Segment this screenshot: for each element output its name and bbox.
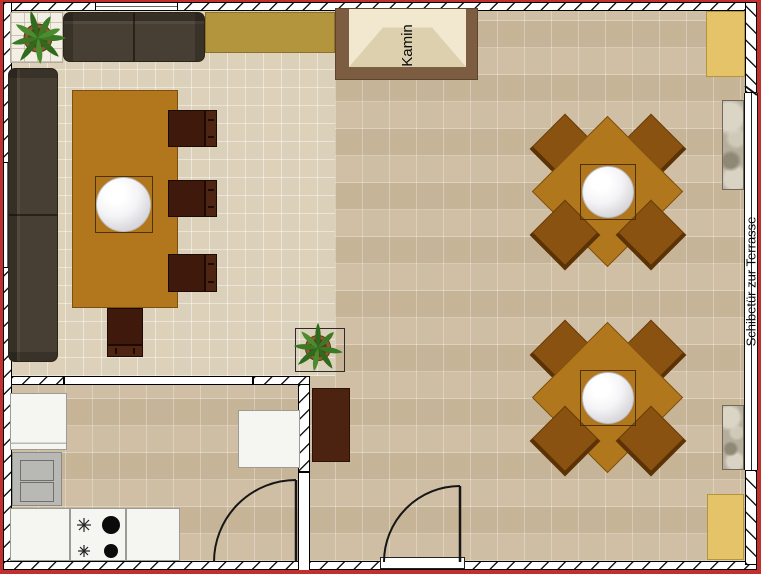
center-plant-box (295, 328, 345, 372)
kitchen-sink[interactable] (12, 452, 62, 506)
sliding-terrace-door[interactable]: Schibetür zur Terrasse (744, 93, 758, 470)
sliding-door-label: Schibetür zur Terrasse (744, 217, 759, 347)
floor-plan: Kamin Schibetür zur Terrasse (0, 0, 761, 574)
cabinet-top-right[interactable] (706, 11, 745, 77)
cabinet-dark-brown[interactable] (312, 388, 350, 462)
fireplace[interactable]: Kamin (335, 8, 478, 80)
interior-wall-kitchen-left (11, 376, 64, 385)
square-table-upper-sphere[interactable] (582, 166, 634, 218)
door-track-pad-bottom (722, 405, 744, 470)
dining-table-sphere[interactable] (96, 177, 151, 232)
kitchen-appliance-square[interactable] (238, 410, 300, 468)
square-table-lower-sphere[interactable] (582, 372, 634, 424)
fireplace-label: Kamin (336, 9, 479, 81)
kitchen-counter-left[interactable] (10, 508, 70, 561)
kitchen-fridge[interactable] (10, 393, 67, 450)
dining-chair-3[interactable] (168, 254, 217, 292)
kitchen-door-opening[interactable] (298, 472, 310, 570)
dining-chair-1[interactable] (168, 110, 217, 147)
cabinet-bottom-right[interactable] (707, 494, 744, 560)
dining-chair-4[interactable] (107, 308, 143, 357)
dining-chair-2[interactable] (168, 180, 217, 217)
door-track-pad-top (722, 100, 744, 190)
wall-right-upper (745, 2, 757, 93)
plan-border-bottom (0, 570, 761, 574)
sofa-top[interactable] (63, 12, 205, 62)
plant-mat (10, 12, 63, 63)
kitchen-counter-right[interactable] (126, 508, 180, 561)
kitchen-pass-through-window[interactable] (64, 376, 253, 385)
entrance-door-threshold[interactable] (380, 557, 465, 569)
sink-bowl-1 (20, 460, 54, 481)
sofa-left[interactable] (8, 68, 58, 362)
kitchen-stove[interactable] (70, 508, 126, 561)
sideboard-top[interactable] (205, 12, 335, 53)
wall-right-lower (745, 470, 757, 565)
sink-bowl-2 (20, 482, 54, 502)
window-top[interactable] (95, 2, 178, 11)
